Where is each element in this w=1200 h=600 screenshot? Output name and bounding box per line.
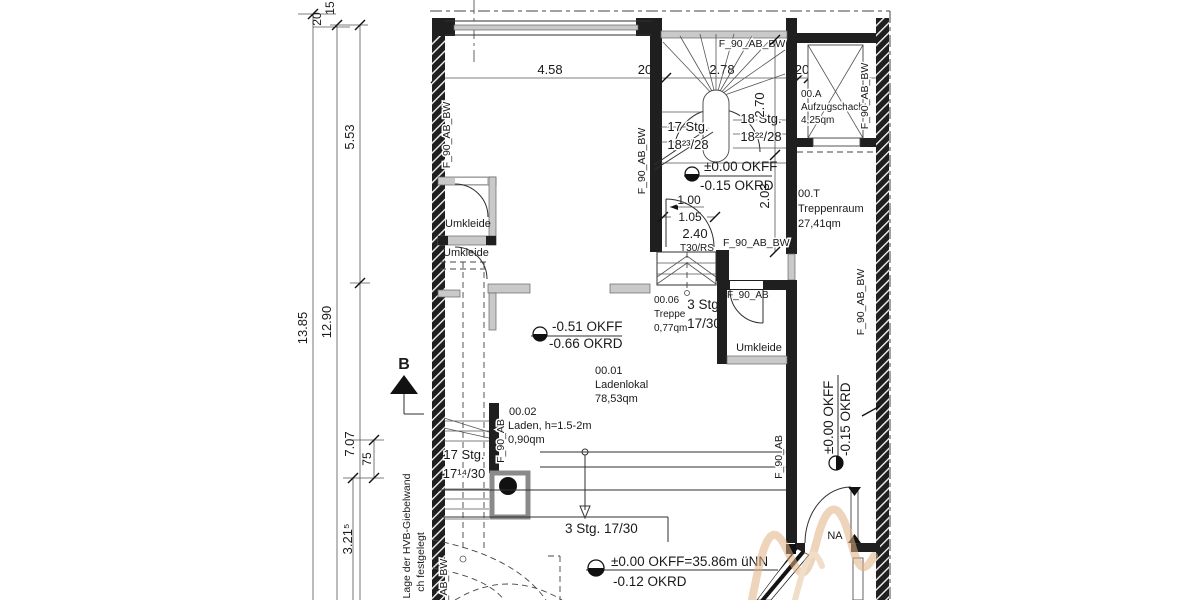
treppe-block <box>716 250 729 281</box>
level-entry-rd: -0.12 OKRD <box>613 574 687 589</box>
room-nr-aufzug: 00.A <box>801 89 822 100</box>
main-stair: 17 Stg. 18²³/28 18 Stg. 18²²/28 F_90_AB_… <box>654 31 787 170</box>
elevator: 00.A Aufzugschacht 4,25qm F_90_AB_BW <box>797 33 876 152</box>
dim-15-top: 15 <box>323 1 337 15</box>
wall-label-sw: F_90_AB_BW <box>438 559 450 600</box>
column <box>499 477 517 495</box>
note-giebelwand-1: Lage der HVB-Giebelwand <box>401 473 413 598</box>
stair-lower-17stg: 17 Stg. <box>443 447 484 462</box>
door-t30: 1.00 1.05 2.40 T30/RS <box>658 193 720 254</box>
room-name-ladenlokal: Ladenlokal <box>595 379 648 391</box>
stair-east-wall <box>786 18 797 254</box>
stair-label-18-23-28: 18²³/28 <box>667 137 708 152</box>
dim-2-70: 2.70 <box>752 92 767 117</box>
note-giebelwand-2: ch festgelegt <box>415 532 427 592</box>
dashed-arcs <box>433 540 562 600</box>
wall-label-stair-west: F_90_AB_BW <box>636 128 648 195</box>
level-marker-landing: ±0.00 OKFF -0.15 OKRD <box>684 159 777 193</box>
door-label-na: NA <box>827 530 843 542</box>
room-nr-treppenraum: 00.T <box>798 188 820 200</box>
wall-label-umkleide-top: F_90_AB_BW <box>723 237 790 249</box>
wall-label-corridor: F_90_AB <box>773 435 785 479</box>
room-nr-laden: 00.02 <box>509 406 537 418</box>
room-labels-center: 00.01 Ladenlokal 78,53qm 00.02 Laden, h=… <box>508 365 648 446</box>
stair-label-17stg: 17 Stg. <box>667 119 708 134</box>
door-dim-height: 2.40 <box>682 226 707 241</box>
room-label-umkleide-3: Umkleide <box>736 342 782 354</box>
room-area-treppe: 0,77qm <box>654 323 687 334</box>
room-area-aufzug: 4,25qm <box>801 115 834 126</box>
stair-17-30-label: 17/30 <box>687 316 721 331</box>
dim-13-85: 13.85 <box>295 312 310 345</box>
floor-plan-sheet: 20 15 5.53 13.85 12.90 7.07 75 3.21⁵ B 4… <box>0 0 1200 600</box>
room-name-aufzug: Aufzugschacht <box>801 102 867 113</box>
dim-75: 75 <box>360 452 374 466</box>
room-name-treppenraum: Treppenraum <box>798 203 864 215</box>
level-corridor-rd: -0.15 OKRD <box>838 382 853 456</box>
stair-3stg-label: 3 Stg <box>687 297 719 312</box>
level-entry-ff: ±0.00 OKFF=35.86m üNN <box>611 554 768 569</box>
dim-3-21: 3.21⁵ <box>340 524 355 555</box>
dim-2-78: 2.78 <box>709 62 734 77</box>
dim-4-58: 4.58 <box>537 62 562 77</box>
section-marker-label: B <box>398 356 410 373</box>
jamb <box>788 254 795 280</box>
wall-label-f90ab-lower: F_90_AB <box>495 419 507 463</box>
room-label-umkleide-1: Umkleide <box>445 218 491 230</box>
level-shop-rd: -0.66 OKRD <box>549 336 623 351</box>
stair-west-wall <box>650 20 662 252</box>
room-name-treppe: Treppe <box>654 309 686 320</box>
window-glazing <box>454 25 638 30</box>
wall-label-east: F_90_AB_BW <box>855 269 867 336</box>
steps3-long-label: 3 Stg. 17/30 <box>565 521 638 536</box>
corridor-west-wall <box>786 280 797 543</box>
stair-label-18-22-28: 18²²/28 <box>740 129 781 144</box>
dimension-chains-left: 20 15 5.53 13.85 12.90 7.07 75 3.21⁵ <box>295 1 384 600</box>
dim-20-top: 20 <box>310 12 324 26</box>
dim-7-07: 7.07 <box>342 431 357 456</box>
dimension-vertical-right-of-stair: 2.70 2.03 <box>752 35 780 257</box>
section-arrow-icon <box>390 375 418 394</box>
room-nr-treppe: 00.06 <box>654 295 679 306</box>
wall-label-west: F_90_AB_BW <box>441 102 453 169</box>
treppenraum-label: 00.T Treppenraum 27,41qm <box>798 188 864 230</box>
level-landing-ff: ±0.00 OKFF <box>704 159 777 174</box>
level-corridor-ff: ±0.00 OKFF <box>821 381 836 454</box>
stair-lower-17-14-30: 17¹⁴/30 <box>443 466 485 481</box>
level-landing-rd: -0.15 OKRD <box>700 178 774 193</box>
east-wall <box>876 18 889 600</box>
level-marker-corridor: ±0.00 OKFF -0.15 OKRD <box>821 375 853 470</box>
dim-5-53: 5.53 <box>342 124 357 149</box>
room-area-ladenlokal: 78,53qm <box>595 393 638 405</box>
room-area-treppenraum: 27,41qm <box>798 218 841 230</box>
room-nr-ladenlokal: 00.01 <box>595 365 623 377</box>
room-area-laden: 0,90qm <box>508 434 545 446</box>
section-marker-b: B <box>390 356 424 414</box>
dim-12-90: 12.90 <box>319 306 334 339</box>
floor-plan-drawing: 20 15 5.53 13.85 12.90 7.07 75 3.21⁵ B 4… <box>0 0 1200 600</box>
level-shop-ff: -0.51 OKFF <box>552 319 623 334</box>
door-swing-arc <box>455 184 488 217</box>
level-marker-shop: -0.51 OKFF -0.66 OKRD <box>531 319 623 351</box>
wall-label-elevator: F_90_AB_BW <box>859 63 871 130</box>
room-name-laden: Laden, h=1.5-2m <box>508 420 591 432</box>
level-marker-entry: ±0.00 OKFF=35.86m üNN -0.12 OKRD <box>586 554 778 589</box>
